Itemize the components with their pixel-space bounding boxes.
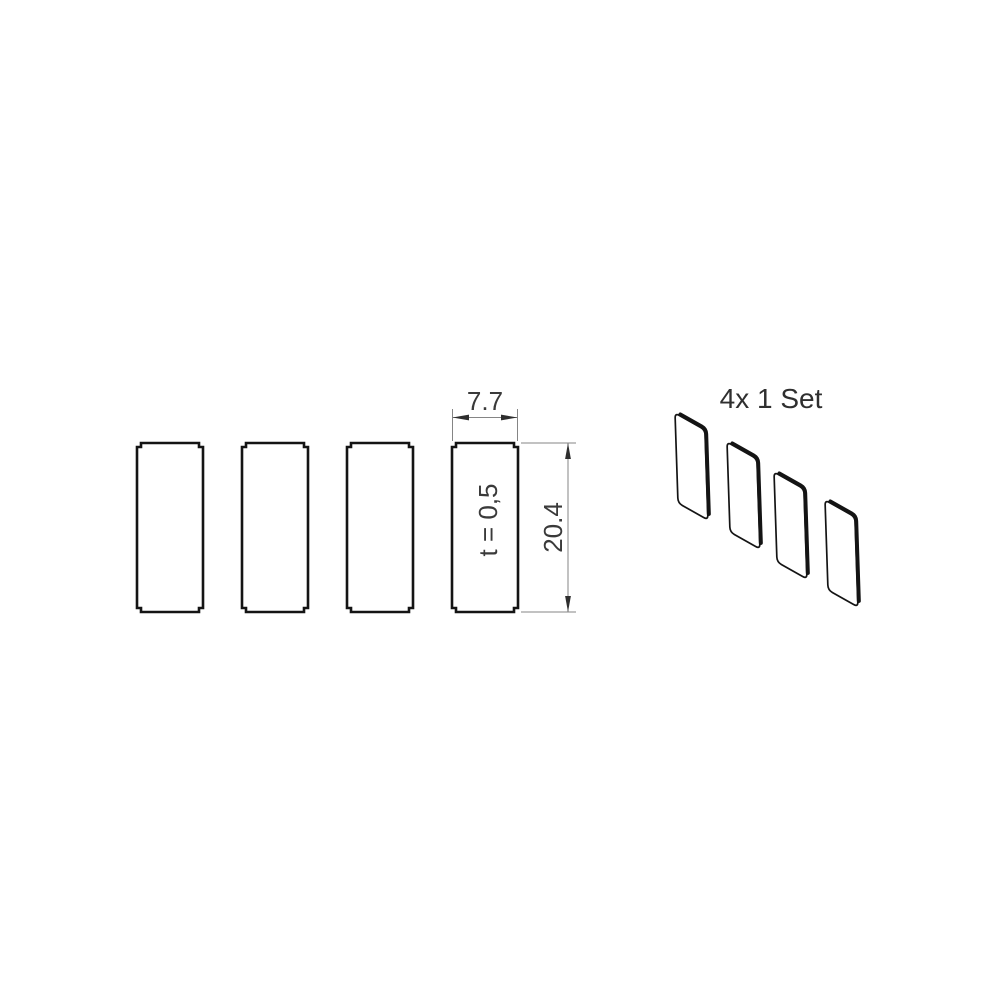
width-arrow-right-icon (501, 415, 518, 421)
height-dimension-value: 20.4 (538, 502, 568, 553)
shim-plate-iso-2 (727, 443, 761, 547)
height-arrow-top-icon (565, 443, 571, 459)
width-dimension: 7.7 (453, 386, 518, 441)
shim-plate-front-2 (242, 443, 308, 612)
thickness-label: t = 0,5 (473, 484, 503, 557)
set-label: 4x 1 Set (720, 383, 823, 414)
iso-view: 4x 1 Set (675, 383, 859, 605)
front-view (137, 443, 518, 612)
width-dimension-value: 7.7 (467, 386, 503, 416)
shim-plate-iso-4 (825, 501, 859, 605)
shim-plate-iso-3 (774, 473, 808, 577)
shim-plate-iso-1 (675, 414, 709, 518)
technical-drawing-canvas: 7.7 20.4 t = 0,5 4x 1 Set (0, 0, 1000, 1000)
shim-plate-drawing: 7.7 20.4 t = 0,5 4x 1 Set (0, 0, 1000, 1000)
height-arrow-bottom-icon (565, 596, 571, 612)
shim-plate-front-3 (347, 443, 413, 612)
shim-plate-front-1 (137, 443, 203, 612)
height-dimension: 20.4 (521, 443, 576, 612)
